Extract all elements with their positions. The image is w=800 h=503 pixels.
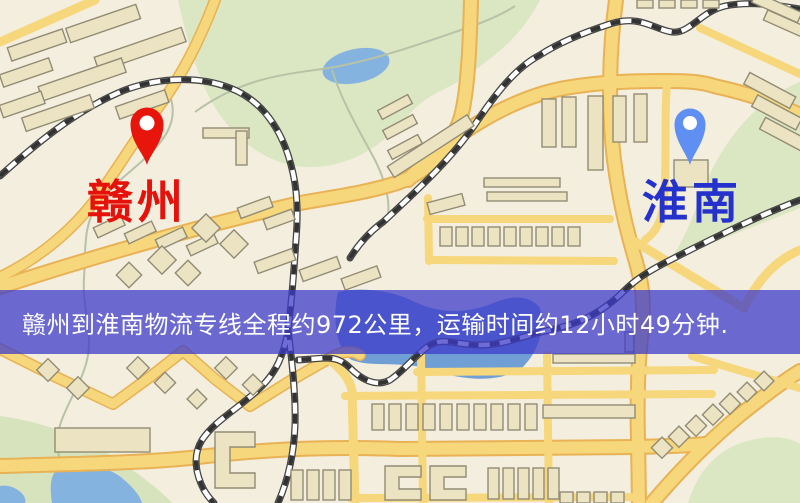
- destination-city-label: 淮南: [642, 179, 742, 225]
- logistics-route-map: 赣州 淮南 赣州到淮南物流专线全程约972公里，运输时间约12小时49分钟.: [0, 0, 800, 503]
- route-info-text: 赣州到淮南物流专线全程约972公里，运输时间约12小时49分钟.: [0, 305, 729, 340]
- pin-hole: [683, 116, 697, 130]
- map-canvas[interactable]: [0, 0, 800, 503]
- origin-city-label: 赣州: [87, 179, 187, 225]
- pin-hole: [140, 116, 155, 131]
- route-info-banner: 赣州到淮南物流专线全程约972公里，运输时间约12小时49分钟.: [0, 290, 800, 354]
- blue-location-pin-icon[interactable]: [668, 106, 712, 168]
- red-location-pin-icon[interactable]: [124, 105, 170, 169]
